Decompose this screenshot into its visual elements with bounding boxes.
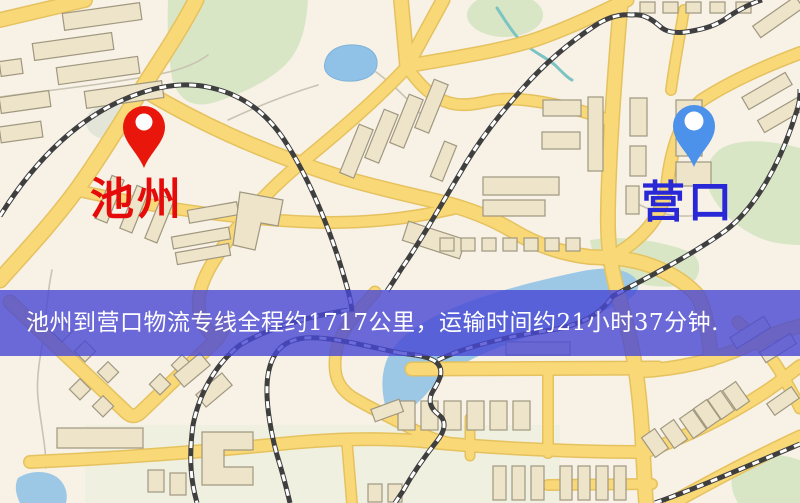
route-banner-text: 池州到营口物流专线全程约1717公里，运输时间约21小时37分钟. <box>0 290 800 356</box>
map-viewport: 池州到营口物流专线全程约1717公里，运输时间约21小时37分钟. 池州 营口 <box>0 0 800 503</box>
map-canvas[interactable] <box>0 0 800 503</box>
destination-city-label: 营口 <box>641 181 735 225</box>
origin-city-label: 池州 <box>90 178 184 222</box>
